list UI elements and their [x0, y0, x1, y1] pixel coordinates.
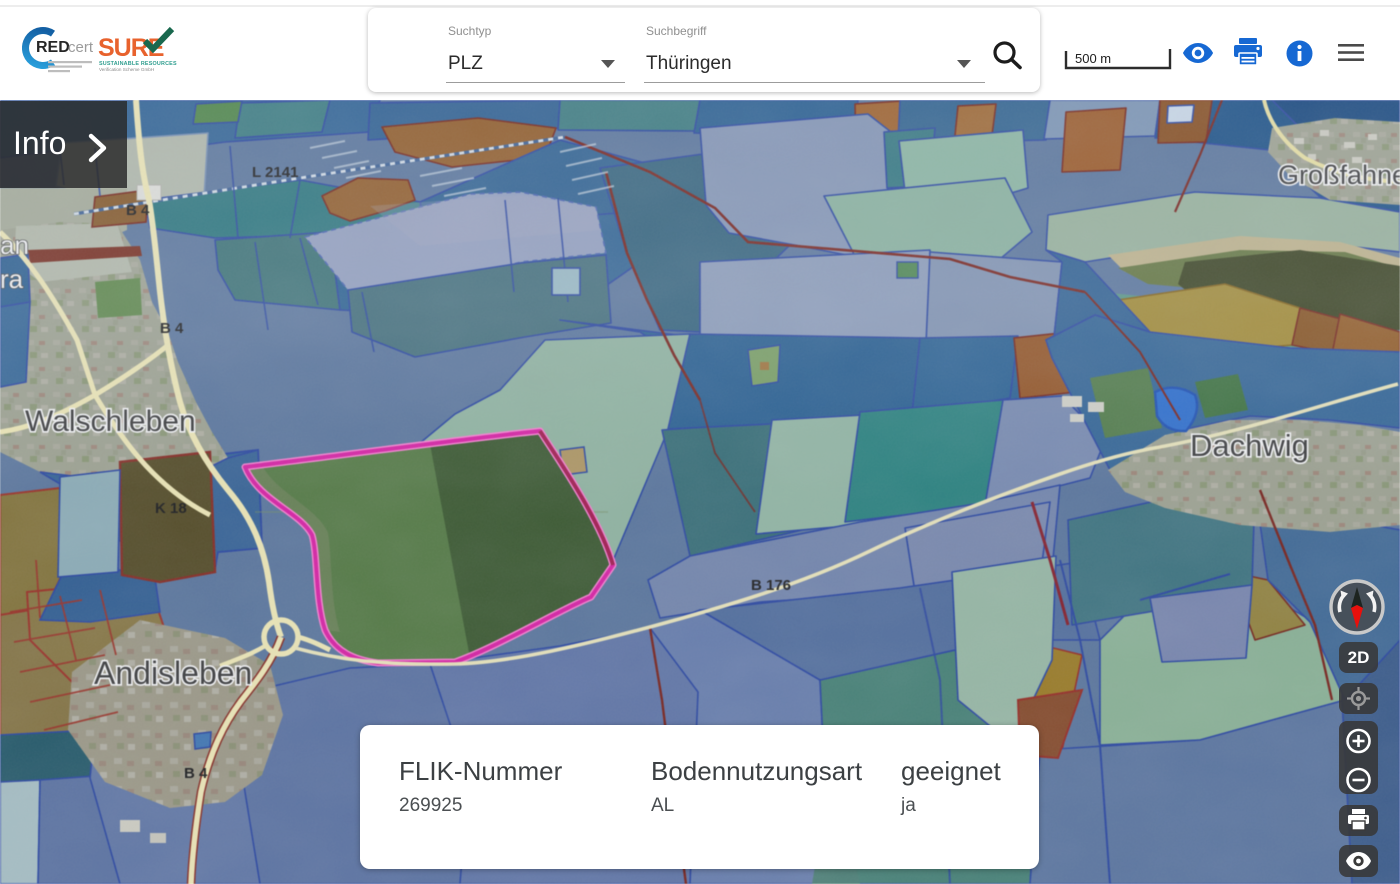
svg-text:500 m: 500 m — [1075, 51, 1111, 66]
svg-text:Verification Scheme GmbH: Verification Scheme GmbH — [99, 67, 154, 72]
svg-text:cert: cert — [68, 39, 94, 56]
svg-text:RED: RED — [36, 39, 70, 56]
